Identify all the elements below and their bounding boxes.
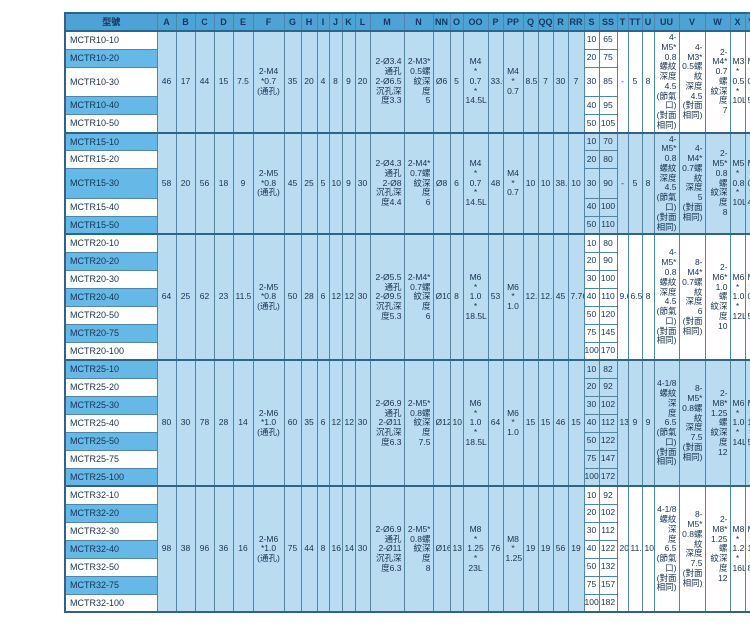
cell-SS: 90 [599, 169, 617, 199]
column-header-F: F [253, 13, 284, 31]
column-header-H: H [301, 13, 317, 31]
cell-C: 78 [195, 360, 214, 486]
cell-G: 75 [284, 486, 301, 612]
cell-K: 9 [342, 31, 355, 133]
cell-R: 45 [553, 234, 568, 360]
cell-RR: 7 [568, 31, 584, 133]
cell-S: 10 [584, 486, 599, 504]
cell-R: 38.5 [553, 133, 568, 235]
column-header-B: B [176, 13, 195, 31]
cell-I: 4 [317, 31, 329, 133]
cell-L: 20 [355, 31, 370, 133]
cell-D: 18 [214, 133, 233, 235]
cell-P: 33.6 [488, 31, 503, 133]
cell-V: 4-M4* 0.7螺紋 深度5 (對面 相同) [679, 133, 705, 235]
cell-D: 15 [214, 31, 233, 133]
cell-G: 50 [284, 234, 301, 360]
cell-SS: 102 [599, 504, 617, 522]
cell-TT: 5 [628, 31, 642, 133]
cell-S: 100 [584, 468, 599, 486]
model-cell: MCTR32-75 [65, 576, 157, 594]
column-header-O: O [450, 13, 463, 31]
cell-S: 50 [584, 216, 599, 234]
column-header-W: W [705, 13, 730, 31]
cell-SS: 80 [599, 151, 617, 169]
header-row: 型號ABCDEFGHIJKLMNNNOOOPPPQQQRRRSSSTTTUUUV… [65, 13, 750, 31]
cell-TT: 9 [628, 360, 642, 486]
model-cell: MCTR15-30 [65, 169, 157, 199]
spec-table-container: 型號ABCDEFGHIJKLMNNNOOOPPPQQQRRRSSSTTTUUUV… [64, 12, 750, 613]
cell-SS: 92 [599, 378, 617, 396]
cell-Q: 10 [523, 133, 538, 235]
model-cell: MCTR25-20 [65, 378, 157, 396]
cell-OO: M4 * 0.7 * 14.5L [463, 133, 488, 235]
cell-SS: 120 [599, 306, 617, 324]
cell-QQ: 19 [538, 486, 553, 612]
row-MCTR15-10: MCTR15-105820561892-M5 *0.8 (通孔)45255109… [65, 133, 750, 151]
cell-H: 20 [301, 31, 317, 133]
cell-UU: 4-M5* 0.8螺紋 深度4.5 (節氣 口) (對面 相同) [654, 133, 679, 235]
cell-NN: Ø8 [433, 133, 450, 235]
cell-G: 35 [284, 31, 301, 133]
cell-S: 40 [584, 414, 599, 432]
cell-SS: 92 [599, 486, 617, 504]
cell-OO: M6 * 1.0 * 18.5L [463, 360, 488, 486]
cell-E: 16 [233, 486, 253, 612]
cell-B: 20 [176, 133, 195, 235]
model-cell: MCTR10-50 [65, 115, 157, 133]
cell-C: 56 [195, 133, 214, 235]
cell-L: 30 [355, 234, 370, 360]
cell-X: M3 * 0.5 * 10L [730, 31, 745, 133]
cell-QQ: 10 [538, 133, 553, 235]
cell-SS: 65 [599, 31, 617, 49]
cell-S: 75 [584, 576, 599, 594]
column-header-M: M [370, 13, 404, 31]
cell-RR: 7.76 [568, 234, 584, 360]
cell-M: 2-Ø3.4 通孔 2-Ø6.5 沉孔深 度3.3 [370, 31, 404, 133]
cell-SS: 122 [599, 540, 617, 558]
cell-A: 80 [157, 360, 176, 486]
cell-F: 2-M6 *1.0 (通孔) [253, 360, 284, 486]
cell-E: 7.5 [233, 31, 253, 133]
cell-E: 9 [233, 133, 253, 235]
column-header-G: G [284, 13, 301, 31]
cell-S: 20 [584, 49, 599, 67]
column-header-I: I [317, 13, 329, 31]
cell-C: 96 [195, 486, 214, 612]
cell-B: 30 [176, 360, 195, 486]
cell-T: 9.6 [617, 234, 628, 360]
cell-K: 12 [342, 234, 355, 360]
model-cell: MCTR10-40 [65, 97, 157, 115]
column-header-U: U [642, 13, 654, 31]
cell-Q: 12.5 [523, 234, 538, 360]
row-MCTR32-10: MCTR32-1098389636162-M6 *1.0 (通孔)7544816… [65, 486, 750, 504]
cell-SS: 82 [599, 360, 617, 378]
cell-SS: 95 [599, 97, 617, 115]
column-header-K: K [342, 13, 355, 31]
column-header-QQ: QQ [538, 13, 553, 31]
column-header-TT: TT [628, 13, 642, 31]
model-cell: MCTR25-10 [65, 360, 157, 378]
cell-C: 44 [195, 31, 214, 133]
cell-B: 17 [176, 31, 195, 133]
model-cell: MCTR32-50 [65, 558, 157, 576]
model-cell: MCTR10-30 [65, 67, 157, 97]
cell-S: 100 [584, 594, 599, 612]
cell-T: 20 [617, 486, 628, 612]
column-header-Q: Q [523, 13, 538, 31]
cell-Y: M3 * 0.5 * 5L [745, 31, 750, 133]
cell-J: 12 [329, 234, 342, 360]
cell-J: 8 [329, 31, 342, 133]
cell-SS: 132 [599, 558, 617, 576]
cell-Q: 15 [523, 360, 538, 486]
column-header-UU: UU [654, 13, 679, 31]
cell-F: 2-M4 *0.7 (通孔) [253, 31, 284, 133]
cell-SS: 90 [599, 252, 617, 270]
cell-A: 46 [157, 31, 176, 133]
cell-O: 13 [450, 486, 463, 612]
cell-SS: 147 [599, 450, 617, 468]
column-header-Y: Y [745, 13, 750, 31]
model-cell: MCTR32-20 [65, 504, 157, 522]
model-cell: MCTR32-40 [65, 540, 157, 558]
cell-I: 6 [317, 234, 329, 360]
column-header-P: P [488, 13, 503, 31]
cell-F: 2-M5 *0.8 (通孔) [253, 234, 284, 360]
column-header-RR: RR [568, 13, 584, 31]
cell-I: 8 [317, 486, 329, 612]
column-header-C: C [195, 13, 214, 31]
cell-F: 2-M5 *0.8 (通孔) [253, 133, 284, 235]
cell-E: 14 [233, 360, 253, 486]
model-cell: MCTR32-30 [65, 522, 157, 540]
cell-W: 2-M6* 1.0螺 紋深度 10 [705, 234, 730, 360]
cell-X: M6 * 1.0 * 14L [730, 360, 745, 486]
cell-M: 2-Ø6.9 通孔 2-Ø11 沉孔深 度6.3 [370, 486, 404, 612]
cell-S: 40 [584, 540, 599, 558]
column-header-E: E [233, 13, 253, 31]
model-cell: MCTR15-50 [65, 216, 157, 234]
cell-UU: 4-1/8 螺紋深 度6.5 (節氣 口) (對面 相同) [654, 486, 679, 612]
cell-R: 46 [553, 360, 568, 486]
column-header-J: J [329, 13, 342, 31]
column-header-model: 型號 [65, 13, 157, 31]
cell-QQ: 15 [538, 360, 553, 486]
cell-K: 9 [342, 133, 355, 235]
cell-RR: 19 [568, 486, 584, 612]
cell-R: 56 [553, 486, 568, 612]
column-header-X: X [730, 13, 745, 31]
model-cell: MCTR10-20 [65, 49, 157, 67]
cell-Y: M4 * 0.7 * 4L [745, 133, 750, 235]
cell-S: 10 [584, 133, 599, 151]
cell-J: 12 [329, 360, 342, 486]
column-header-NN: NN [433, 13, 450, 31]
cell-M: 2-Ø6.9 通孔 2-Ø11 沉孔深 度6.3 [370, 360, 404, 486]
cell-W: 2-M8* 1.25螺 紋深度 12 [705, 360, 730, 486]
cell-S: 30 [584, 169, 599, 199]
cell-PP: M4 * 0.7 [503, 133, 523, 235]
cell-SS: 112 [599, 522, 617, 540]
cell-SS: 172 [599, 468, 617, 486]
cell-L: 30 [355, 486, 370, 612]
cell-NN: Ø10 [433, 234, 450, 360]
cell-O: 6 [450, 133, 463, 235]
cell-SS: 145 [599, 324, 617, 342]
model-cell: MCTR15-10 [65, 133, 157, 151]
cell-W: 2-M4* 0.7螺 紋深度 7 [705, 31, 730, 133]
cell-S: 40 [584, 288, 599, 306]
cell-O: 5 [450, 31, 463, 133]
cell-N: 2-M5* 0.8螺 紋深度 7.5 [404, 360, 433, 486]
cell-TT: 6.5 [628, 234, 642, 360]
model-cell: MCTR32-100 [65, 594, 157, 612]
cell-X: M5 * 0.8 * 10L [730, 133, 745, 235]
cell-M: 2-Ø5.5 通孔 2-Ø9.5 沉孔深 度5.3 [370, 234, 404, 360]
cell-SS: 100 [599, 198, 617, 216]
model-cell: MCTR20-30 [65, 270, 157, 288]
cell-D: 36 [214, 486, 233, 612]
cell-S: 30 [584, 67, 599, 97]
column-header-S: S [584, 13, 599, 31]
model-cell: MCTR20-20 [65, 252, 157, 270]
cell-S: 10 [584, 234, 599, 252]
cell-Y: M5 * 0.8 * 5L [745, 234, 750, 360]
cell-S: 20 [584, 378, 599, 396]
cell-RR: 10 [568, 133, 584, 235]
table-body: MCTR10-10461744157.52-M4 *0.7 (通孔)352048… [65, 31, 750, 612]
cell-S: 20 [584, 504, 599, 522]
cell-SS: 157 [599, 576, 617, 594]
cell-S: 50 [584, 306, 599, 324]
cell-RR: 15 [568, 360, 584, 486]
cell-S: 10 [584, 31, 599, 49]
model-cell: MCTR20-75 [65, 324, 157, 342]
cell-T: - [617, 133, 628, 235]
cell-H: 44 [301, 486, 317, 612]
model-cell: MCTR25-50 [65, 432, 157, 450]
cell-SS: 182 [599, 594, 617, 612]
column-header-SS: SS [599, 13, 617, 31]
cell-S: 30 [584, 522, 599, 540]
cell-U: 8 [642, 234, 654, 360]
cell-S: 75 [584, 450, 599, 468]
model-cell: MCTR10-10 [65, 31, 157, 49]
cell-TT: 5 [628, 133, 642, 235]
cell-S: 40 [584, 97, 599, 115]
column-header-OO: OO [463, 13, 488, 31]
cell-A: 64 [157, 234, 176, 360]
cell-N: 2-M5* 0.8螺 紋深度 8 [404, 486, 433, 612]
cell-UU: 4-M5* 0.8螺紋 深度4.5 (節氣 口) (對面 相同) [654, 234, 679, 360]
model-cell: MCTR25-30 [65, 396, 157, 414]
cell-B: 38 [176, 486, 195, 612]
cell-O: 10 [450, 360, 463, 486]
cell-V: 8-M5* 0.8螺紋 深度7.5 (對面 相同) [679, 486, 705, 612]
cell-K: 14 [342, 486, 355, 612]
cell-SS: 112 [599, 414, 617, 432]
cell-U: 8 [642, 133, 654, 235]
cell-N: 2-M4* 0.7螺 紋深度 6 [404, 234, 433, 360]
column-header-N: N [404, 13, 433, 31]
cell-P: 48 [488, 133, 503, 235]
cell-S: 20 [584, 151, 599, 169]
cell-UU: 4-M5* 0.8螺紋 深度4.5 (節氣 口) (對面 相同) [654, 31, 679, 133]
cell-L: 30 [355, 360, 370, 486]
cell-U: 8 [642, 31, 654, 133]
cell-N: 2-M3* 0.5螺 紋深度 5 [404, 31, 433, 133]
table-header: 型號ABCDEFGHIJKLMNNNOOOPPPQQQRRRSSSTTTUUUV… [65, 13, 750, 31]
cell-PP: M6 * 1.0 [503, 360, 523, 486]
cell-R: 30 [553, 31, 568, 133]
cell-S: 50 [584, 432, 599, 450]
cell-I: 6 [317, 360, 329, 486]
cell-T: 13 [617, 360, 628, 486]
cell-SS: 122 [599, 432, 617, 450]
cell-OO: M8 * 1.25 * 23L [463, 486, 488, 612]
cell-SS: 105 [599, 115, 617, 133]
cell-OO: M4 * 0.7 * 14.5L [463, 31, 488, 133]
model-cell: MCTR25-75 [65, 450, 157, 468]
cell-A: 98 [157, 486, 176, 612]
cell-PP: M4 * 0.7 [503, 31, 523, 133]
cell-W: 2-M5* 0.8螺 紋深度 8 [705, 133, 730, 235]
cell-V: 8-M5* 0.8螺紋 深度7.5 (對面 相同) [679, 360, 705, 486]
cell-G: 60 [284, 360, 301, 486]
cell-X: M6 * 1.0 * 12L [730, 234, 745, 360]
cell-SS: 85 [599, 67, 617, 97]
cell-S: 40 [584, 198, 599, 216]
row-MCTR25-10: MCTR25-1080307828142-M6 *1.0 (通孔)6035612… [65, 360, 750, 378]
cell-K: 12 [342, 360, 355, 486]
model-cell: MCTR20-40 [65, 288, 157, 306]
column-header-PP: PP [503, 13, 523, 31]
cell-D: 23 [214, 234, 233, 360]
cell-N: 2-M4* 0.7螺 紋深度 6 [404, 133, 433, 235]
model-cell: MCTR20-50 [65, 306, 157, 324]
cell-U: 10 [642, 486, 654, 612]
cell-M: 2-Ø4.3 通孔 2-Ø8 沉孔深 度4.4 [370, 133, 404, 235]
cell-UU: 4-1/8 螺紋深 度6.5 (節氣 口) (對面 相同) [654, 360, 679, 486]
cell-Y: M8 * 1.25 * 8L [745, 486, 750, 612]
cell-J: 10 [329, 133, 342, 235]
cell-P: 53 [488, 234, 503, 360]
cell-P: 76 [488, 486, 503, 612]
cell-H: 35 [301, 360, 317, 486]
cell-TT: 11.5 [628, 486, 642, 612]
cell-SS: 102 [599, 396, 617, 414]
cell-NN: Ø16 [433, 486, 450, 612]
model-cell: MCTR20-100 [65, 342, 157, 360]
cell-I: 5 [317, 133, 329, 235]
cell-SS: 70 [599, 133, 617, 151]
cell-S: 75 [584, 324, 599, 342]
cell-S: 10 [584, 360, 599, 378]
cell-S: 50 [584, 558, 599, 576]
cell-PP: M6 * 1.0 [503, 234, 523, 360]
model-cell: MCTR15-40 [65, 198, 157, 216]
cell-QQ: 7 [538, 31, 553, 133]
cell-P: 64 [488, 360, 503, 486]
model-cell: MCTR20-10 [65, 234, 157, 252]
model-spec-table: 型號ABCDEFGHIJKLMNNNOOOPPPQQQRRRSSSTTTUUUV… [64, 12, 750, 613]
cell-NN: Ø6 [433, 31, 450, 133]
cell-H: 25 [301, 133, 317, 235]
cell-QQ: 12.5 [538, 234, 553, 360]
cell-H: 28 [301, 234, 317, 360]
model-cell: MCTR25-40 [65, 414, 157, 432]
column-header-V: V [679, 13, 705, 31]
cell-A: 58 [157, 133, 176, 235]
cell-V: 4-M3* 0.5螺紋 深度4.5 (對面 相同) [679, 31, 705, 133]
column-header-A: A [157, 13, 176, 31]
cell-U: 9 [642, 360, 654, 486]
cell-L: 30 [355, 133, 370, 235]
cell-SS: 110 [599, 288, 617, 306]
cell-C: 62 [195, 234, 214, 360]
cell-S: 30 [584, 270, 599, 288]
model-cell: MCTR15-20 [65, 151, 157, 169]
row-MCTR10-10: MCTR10-10461744157.52-M4 *0.7 (通孔)352048… [65, 31, 750, 49]
cell-SS: 75 [599, 49, 617, 67]
cell-OO: M6 * 1.0 * 18.5L [463, 234, 488, 360]
row-MCTR20-10: MCTR20-106425622311.52-M5 *0.8 (通孔)50286… [65, 234, 750, 252]
column-header-L: L [355, 13, 370, 31]
cell-NN: Ø12 [433, 360, 450, 486]
cell-E: 11.5 [233, 234, 253, 360]
cell-S: 50 [584, 115, 599, 133]
cell-S: 100 [584, 342, 599, 360]
model-cell: MCTR32-10 [65, 486, 157, 504]
cell-O: 8 [450, 234, 463, 360]
column-header-R: R [553, 13, 568, 31]
cell-SS: 80 [599, 234, 617, 252]
cell-SS: 100 [599, 270, 617, 288]
column-header-T: T [617, 13, 628, 31]
cell-Y: M6 * 1.0 * 5L [745, 360, 750, 486]
cell-V: 8-M4* 0.7螺紋 深度6 (對面 相同) [679, 234, 705, 360]
model-cell: MCTR25-100 [65, 468, 157, 486]
cell-Q: 19 [523, 486, 538, 612]
column-header-D: D [214, 13, 233, 31]
cell-S: 20 [584, 252, 599, 270]
cell-F: 2-M6 *1.0 (通孔) [253, 486, 284, 612]
cell-G: 45 [284, 133, 301, 235]
cell-W: 2-M8* 1.25螺 紋深度 12 [705, 486, 730, 612]
cell-D: 28 [214, 360, 233, 486]
cell-J: 16 [329, 486, 342, 612]
cell-S: 30 [584, 396, 599, 414]
cell-T: - [617, 31, 628, 133]
cell-Q: 8.5 [523, 31, 538, 133]
cell-SS: 110 [599, 216, 617, 234]
cell-B: 25 [176, 234, 195, 360]
cell-PP: M8 * 1.25 [503, 486, 523, 612]
cell-X: M8 * 1.25 * 16L [730, 486, 745, 612]
cell-SS: 170 [599, 342, 617, 360]
